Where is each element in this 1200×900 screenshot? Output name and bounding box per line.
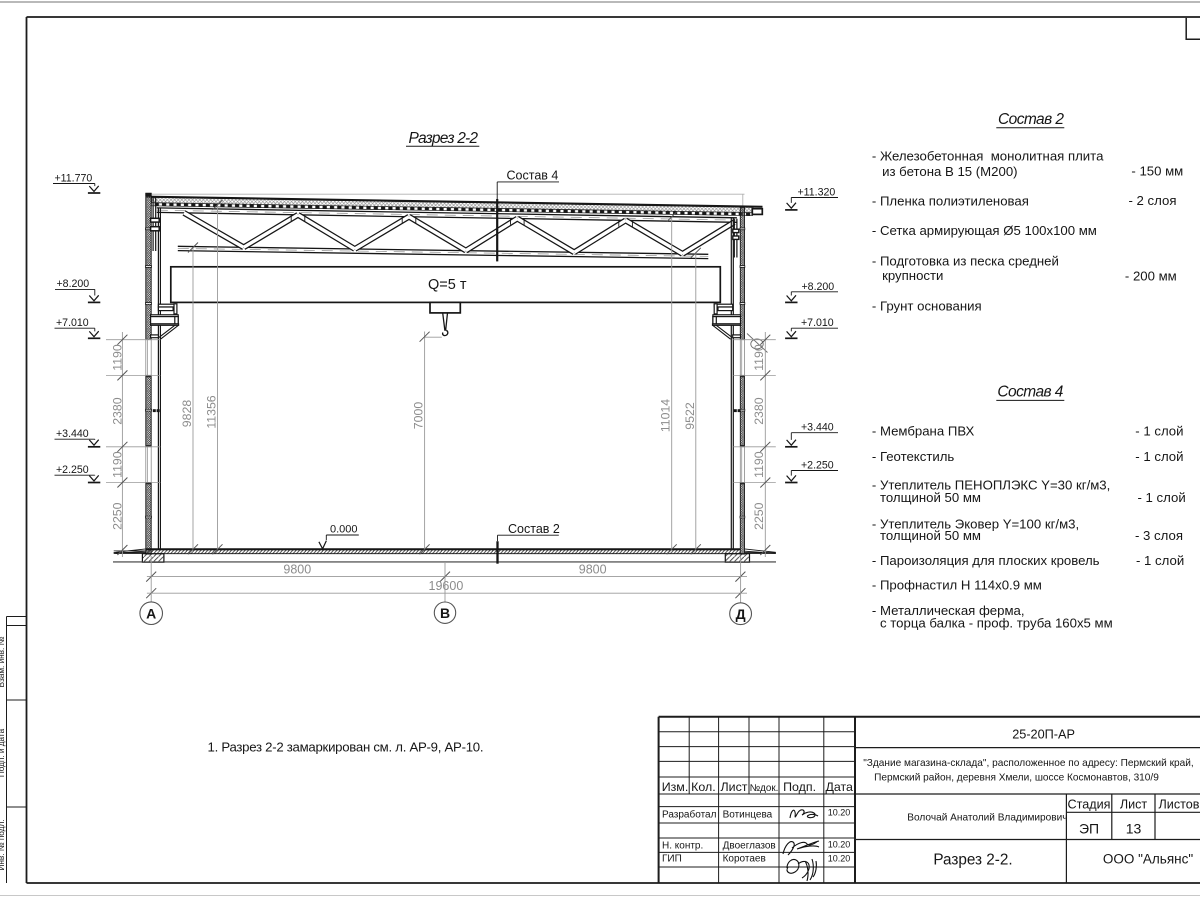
svg-text:11014: 11014 <box>659 399 673 432</box>
svg-text:11356: 11356 <box>205 395 219 428</box>
svg-text:Взам. инв. №: Взам. инв. № <box>0 636 6 687</box>
svg-text:- Грунт основания: - Грунт основания <box>872 299 982 314</box>
svg-text:Волочай Анатолий Владимирович: Волочай Анатолий Владимирович <box>907 812 1067 823</box>
svg-text:+7.010: +7.010 <box>801 317 834 329</box>
svg-text:- Сетка армирующая Ø5 100x100: - Сетка армирующая Ø5 100x100 мм <box>872 223 1097 238</box>
svg-text:Состав 2: Состав 2 <box>998 111 1064 128</box>
svg-text:Изм.: Изм. <box>662 780 689 794</box>
svg-text:- 1 слой: - 1 слой <box>1138 490 1186 505</box>
svg-text:Разработал: Разработал <box>662 808 717 820</box>
svg-text:+2.250: +2.250 <box>801 459 834 471</box>
svg-text:1. Разрез 2-2 замаркирован см.: 1. Разрез 2-2 замаркирован см. л. АР-9, … <box>208 740 484 755</box>
svg-text:Состав 2: Состав 2 <box>508 522 560 536</box>
svg-text:Разрез 2-2: Разрез 2-2 <box>409 130 479 147</box>
svg-text:- 3 слоя: - 3 слоя <box>1135 528 1183 543</box>
svg-text:Q=5 т: Q=5 т <box>428 277 467 293</box>
svg-text:- Геотекстиль: - Геотекстиль <box>872 449 955 464</box>
svg-text:1190: 1190 <box>110 344 124 371</box>
svg-text:+11.770: +11.770 <box>55 172 93 184</box>
svg-text:ООО "Альянс": ООО "Альянс" <box>1103 852 1193 867</box>
svg-text:Стадия: Стадия <box>1068 798 1111 812</box>
svg-text:- 1 слой: - 1 слой <box>1135 449 1183 464</box>
svg-text:Вотинцева: Вотинцева <box>723 809 773 820</box>
svg-text:- Подготовка из песка средней: - Подготовка из песка средней <box>872 254 1059 269</box>
svg-text:+8.200: +8.200 <box>802 281 835 293</box>
svg-text:Состав 4: Состав 4 <box>997 384 1063 401</box>
svg-text:ЭП: ЭП <box>1079 820 1099 836</box>
svg-text:- 1 слой: - 1 слой <box>1135 423 1183 438</box>
svg-text:9828: 9828 <box>180 400 194 428</box>
svg-text:+3.440: +3.440 <box>801 422 834 434</box>
svg-text:ГИП: ГИП <box>662 854 682 865</box>
svg-text:25-20П-АР: 25-20П-АР <box>1012 728 1075 742</box>
svg-text:1190: 1190 <box>752 344 766 371</box>
svg-text:с торца балка - проф. труба 16: с торца балка - проф. труба 160x5 мм <box>880 615 1113 630</box>
svg-text:Листов: Листов <box>1159 798 1200 812</box>
svg-text:10.20: 10.20 <box>828 839 851 849</box>
svg-text:Состав 4: Состав 4 <box>507 169 559 183</box>
svg-text:толщиной 50 мм: толщиной 50 мм <box>880 528 981 543</box>
svg-text:Разрез 2-2.: Разрез 2-2. <box>933 852 1012 869</box>
svg-text:1190: 1190 <box>752 451 766 478</box>
svg-text:Лист: Лист <box>721 780 748 794</box>
svg-text:Двоеглазов: Двоеглазов <box>723 841 776 852</box>
svg-text:2250: 2250 <box>752 502 766 530</box>
svg-text:2380: 2380 <box>110 397 124 425</box>
svg-text:19600: 19600 <box>429 579 464 593</box>
svg-text:+2.250: +2.250 <box>56 464 89 476</box>
svg-text:Коротаев: Коротаев <box>723 854 766 865</box>
svg-text:толщиной 50 мм: толщиной 50 мм <box>880 490 981 505</box>
svg-text:В: В <box>440 605 450 621</box>
svg-text:9800: 9800 <box>579 562 607 576</box>
svg-text:Пермский район, деревня Хмели,: Пермский район, деревня Хмели, шоссе Кос… <box>874 772 1159 783</box>
svg-text:Лист: Лист <box>1120 798 1148 812</box>
svg-text:1190: 1190 <box>110 451 124 478</box>
svg-text:0.000: 0.000 <box>330 524 358 536</box>
svg-text:Д: Д <box>736 606 746 622</box>
svg-text:- Мембрана ПВХ: - Мембрана ПВХ <box>872 423 975 438</box>
svg-text:Н. контр.: Н. контр. <box>662 841 703 852</box>
svg-text:крупности: крупности <box>882 268 943 283</box>
svg-text:+8.200: +8.200 <box>57 278 90 290</box>
svg-text:- 150 мм: - 150 мм <box>1131 163 1183 178</box>
svg-text:№док.: №док. <box>750 783 779 794</box>
svg-text:10.20: 10.20 <box>828 808 851 818</box>
svg-text:2380: 2380 <box>752 397 766 425</box>
svg-text:13: 13 <box>1126 820 1142 836</box>
svg-text:Подп. и дата: Подп. и дата <box>0 728 6 777</box>
svg-text:+3.440: +3.440 <box>56 428 89 440</box>
svg-text:Подп.: Подп. <box>783 780 816 794</box>
svg-text:- 200 мм: - 200 мм <box>1125 269 1177 284</box>
svg-text:- Профнастил Н 114x0.9 мм: - Профнастил Н 114x0.9 мм <box>872 577 1042 592</box>
svg-text:2250: 2250 <box>110 502 124 530</box>
svg-text:- Железобетонная монолитная п: - Железобетонная монолитная плита <box>872 148 1104 163</box>
svg-text:А: А <box>146 605 156 621</box>
svg-text:из бетона В 15 (М200): из бетона В 15 (М200) <box>882 164 1017 179</box>
svg-text:7000: 7000 <box>412 402 426 430</box>
svg-text:+11.320: +11.320 <box>798 186 836 198</box>
svg-text:- Пленка полиэтиленовая: - Пленка полиэтиленовая <box>872 193 1029 208</box>
svg-text:9522: 9522 <box>683 402 697 430</box>
svg-text:Кол.: Кол. <box>691 780 716 794</box>
svg-text:Дата: Дата <box>825 780 853 794</box>
svg-text:- Пароизоляция для плоских кро: - Пароизоляция для плоских кровель <box>872 553 1100 568</box>
svg-text:- 1 слой: - 1 слой <box>1136 553 1184 568</box>
svg-text:10.20: 10.20 <box>828 853 851 863</box>
svg-text:"Здание магазина-склада", расп: "Здание магазина-склада", расположенное … <box>863 758 1193 769</box>
svg-text:Инв. № подл.: Инв. № подл. <box>0 820 6 871</box>
svg-text:- 2 слоя: - 2 слоя <box>1129 193 1177 208</box>
svg-text:9800: 9800 <box>283 562 311 576</box>
svg-text:+7.010: +7.010 <box>56 317 89 329</box>
